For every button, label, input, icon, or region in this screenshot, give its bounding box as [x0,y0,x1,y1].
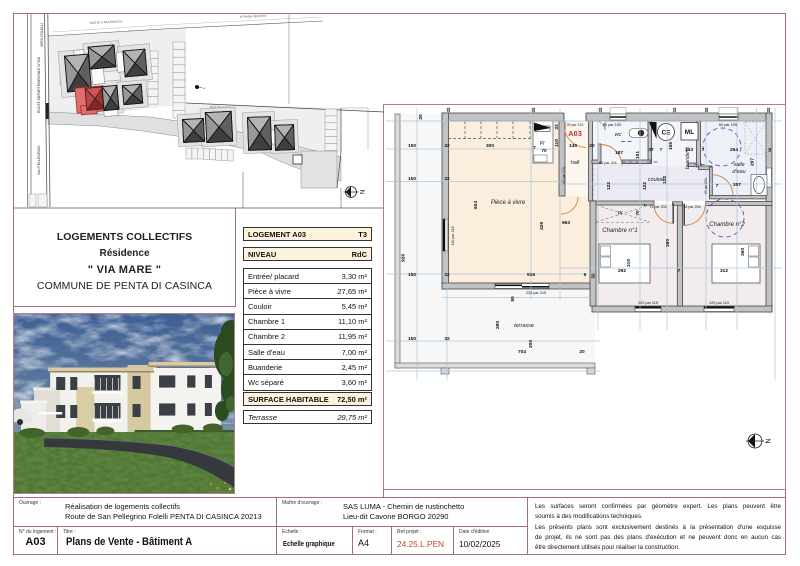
svg-text:VERS FOLELLI: VERS FOLELLI [40,23,44,48]
svg-text:32: 32 [591,273,597,279]
svg-text:Chambre n°1: Chambre n°1 [602,228,637,234]
svg-text:32: 32 [672,107,677,113]
svg-text:122: 122 [642,182,648,190]
svg-text:N: N [358,190,365,195]
svg-text:32: 32 [766,107,771,113]
svg-text:a: a [203,86,205,90]
svg-text:Chambre n°2: Chambre n°2 [709,222,745,228]
svg-text:7: 7 [678,268,681,274]
svg-text:300: 300 [486,143,494,149]
svg-text:salle: salle [733,162,744,168]
svg-text:429: 429 [539,222,545,230]
svg-text:145: 145 [569,143,577,149]
svg-text:20: 20 [418,114,424,120]
svg-text:292: 292 [618,268,626,274]
svg-text:150: 150 [408,336,416,342]
svg-text:704: 704 [518,349,526,355]
svg-text:A03: A03 [568,129,582,138]
svg-text:7: 7 [702,147,705,153]
svg-text:36: 36 [767,147,772,152]
svg-text:terrasse: terrasse [514,323,534,329]
svg-text:168: 168 [668,142,674,150]
svg-text:7: 7 [643,203,649,206]
svg-text:80: 80 [510,296,516,302]
svg-text:20: 20 [579,349,585,355]
svg-text:110: 110 [554,139,560,147]
svg-text:32: 32 [444,176,450,182]
svg-text:6: 6 [584,272,587,278]
svg-text:101: 101 [635,151,641,159]
svg-text:152 par 210: 152 par 210 [562,167,566,185]
svg-text:122: 122 [606,182,612,190]
svg-text:380: 380 [665,239,671,247]
svg-text:200: 200 [528,340,534,348]
svg-text:80 par 105: 80 par 105 [603,123,621,127]
svg-text:70: 70 [541,148,547,154]
svg-text:32: 32 [704,107,709,113]
svg-text:ML: ML [685,129,694,136]
svg-text:STRADA VECCHIA: STRADA VECCHIA [240,14,266,19]
svg-text:70: 70 [635,210,641,216]
svg-text:150: 150 [408,176,416,182]
svg-text:63 par 204: 63 par 204 [683,205,700,209]
svg-text:360: 360 [740,248,746,256]
svg-text:32: 32 [531,107,536,113]
svg-text:143: 143 [685,147,693,153]
svg-text:32: 32 [444,272,450,278]
svg-text:280: 280 [495,321,501,329]
svg-text:Pièce à vivre: Pièce à vivre [491,200,526,206]
svg-text:220 par 215: 220 par 215 [526,291,546,295]
svg-text:516: 516 [527,272,535,278]
svg-text:d'eau: d'eau [732,169,745,175]
svg-text:73 par 204: 73 par 204 [649,205,666,209]
svg-text:120 par 115: 120 par 115 [709,301,729,305]
svg-text:N: N [764,438,771,443]
svg-text:120 par 215: 120 par 215 [451,226,455,245]
svg-text:312: 312 [720,268,728,274]
svg-text:963: 963 [562,220,570,226]
svg-text:20: 20 [589,143,595,149]
svg-text:122: 122 [662,176,668,184]
svg-text:187: 187 [615,150,623,156]
svg-text:297: 297 [750,158,756,166]
svg-text:32: 32 [444,143,450,149]
svg-text:120 par 115: 120 par 115 [638,301,658,305]
svg-text:7: 7 [660,147,663,153]
svg-text:7: 7 [716,183,719,189]
svg-text:90 par 215: 90 par 215 [567,123,584,127]
svg-text:32: 32 [444,336,450,342]
svg-text:ROUTE DEPARTEMENTALE N°506: ROUTE DEPARTEMENTALE N°506 [37,57,41,113]
svg-text:32: 32 [598,107,603,113]
svg-text:928: 928 [401,254,407,262]
svg-text:60 par 105: 60 par 105 [719,123,737,127]
svg-text:604: 604 [473,201,479,209]
svg-text:254: 254 [730,147,738,153]
svg-text:63 par 204: 63 par 204 [599,161,616,165]
svg-text:CE: CE [661,130,671,137]
svg-text:150: 150 [408,272,416,278]
svg-text:207: 207 [733,182,741,188]
svg-text:33: 33 [554,124,560,130]
svg-text:32: 32 [446,107,451,113]
svg-text:37: 37 [648,147,654,153]
svg-text:San PELLEGRINO: San PELLEGRINO [37,145,41,175]
svg-text:150: 150 [408,143,416,149]
svg-text:RUE DI U MULINACCIU: RUE DI U MULINACCIU [90,19,123,25]
svg-text:7: 7 [533,145,536,151]
svg-text:310: 310 [626,259,632,267]
svg-text:wc: wc [615,132,622,138]
svg-text:63 par 204: 63 par 204 [704,178,708,194]
svg-text:hall: hall [571,160,580,166]
